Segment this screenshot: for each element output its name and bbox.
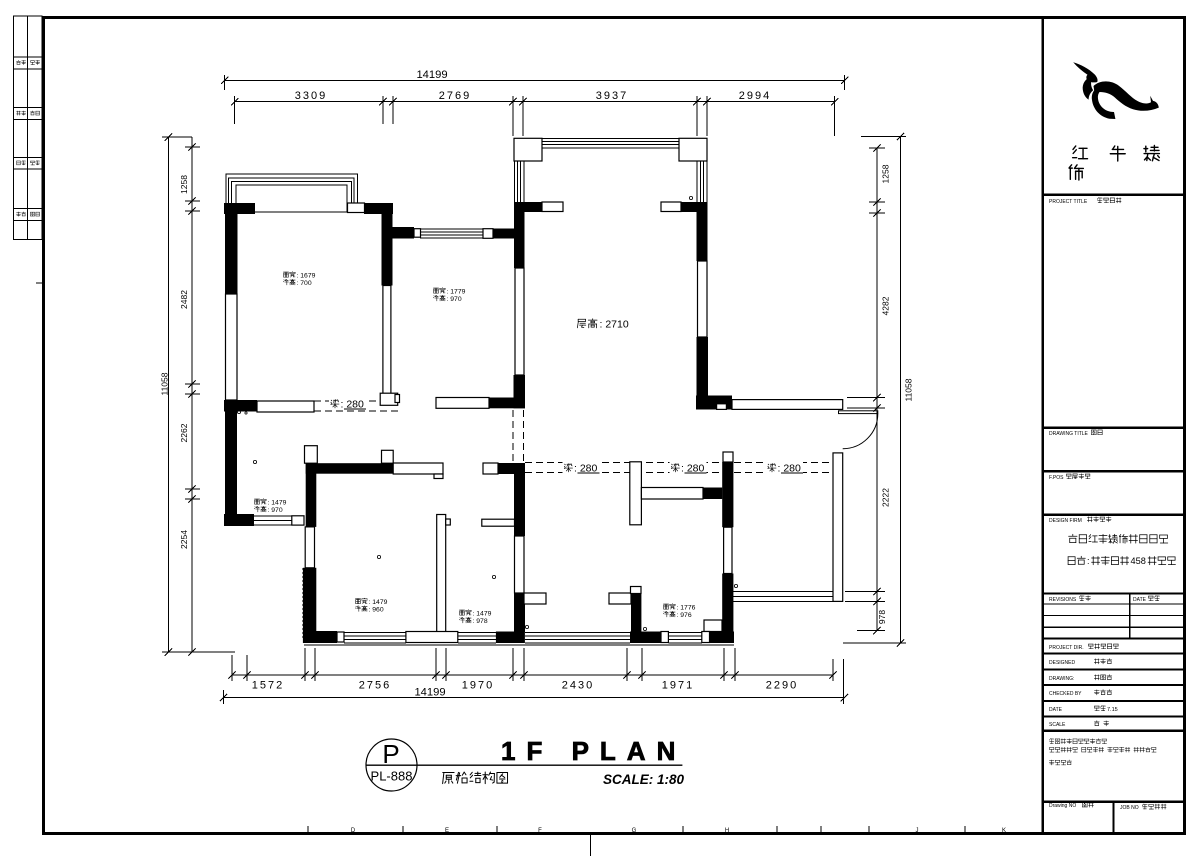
svg-text:1258: 1258 [881, 164, 891, 183]
svg-text:DATE: DATE [1049, 707, 1063, 713]
svg-text:: 970: : 970 [268, 507, 283, 514]
svg-text:D: D [351, 828, 356, 834]
svg-text:978: 978 [877, 610, 887, 624]
svg-text:1F PLAN: 1F PLAN [501, 736, 686, 766]
svg-text:DRAWING:: DRAWING: [1049, 676, 1074, 682]
svg-text:3309: 3309 [295, 90, 327, 102]
svg-text:PL-888: PL-888 [371, 769, 413, 784]
svg-text:SCALE: 1:80: SCALE: 1:80 [603, 772, 685, 787]
svg-text:: 1479: : 1479 [369, 599, 388, 606]
svg-text:1258: 1258 [179, 175, 189, 194]
svg-text:PROJECT DIR.: PROJECT DIR. [1049, 645, 1084, 651]
svg-text:: 1479: : 1479 [473, 610, 492, 617]
svg-text:7.15: 7.15 [1107, 707, 1118, 713]
svg-text:H: H [725, 828, 729, 834]
svg-text:: 1479: : 1479 [268, 499, 287, 506]
svg-text:E: E [445, 828, 449, 834]
svg-text:SCALE: SCALE [1049, 722, 1066, 728]
svg-text:3937: 3937 [596, 90, 628, 102]
svg-text:K: K [1002, 828, 1006, 834]
svg-text:CHECKED BY: CHECKED BY [1049, 691, 1082, 697]
svg-text:14199: 14199 [416, 69, 447, 81]
svg-text:: 1679: : 1679 [297, 272, 316, 279]
svg-text:1572: 1572 [252, 680, 284, 692]
svg-text:JOB NO: JOB NO [1120, 805, 1139, 811]
svg-text:2769: 2769 [439, 90, 471, 102]
svg-text:DESIGN FIRM: DESIGN FIRM [1049, 518, 1082, 524]
svg-text:2290: 2290 [766, 680, 798, 692]
svg-text:: 978: : 978 [473, 618, 488, 625]
svg-text:: 700: : 700 [297, 280, 312, 287]
svg-text:: 2710: : 2710 [600, 318, 629, 330]
svg-text:: 1779: : 1779 [447, 288, 466, 295]
svg-text:14199: 14199 [414, 687, 445, 699]
svg-text:2756: 2756 [359, 680, 391, 692]
svg-text:DATE: DATE [1133, 597, 1147, 603]
svg-text:2482: 2482 [179, 290, 189, 309]
svg-text:2262: 2262 [179, 423, 189, 442]
svg-text:2430: 2430 [562, 680, 594, 692]
svg-text:: 1776: : 1776 [677, 604, 696, 611]
svg-text:4282: 4282 [881, 296, 891, 315]
svg-text:J: J [916, 828, 919, 834]
svg-text:DESIGNED: DESIGNED [1049, 660, 1076, 666]
svg-text:11058: 11058 [904, 378, 914, 401]
svg-text:DRAWING TITLE: DRAWING TITLE [1049, 431, 1089, 437]
svg-text:PROJECT TITLE: PROJECT TITLE [1049, 199, 1088, 205]
svg-text:: 970: : 970 [447, 296, 462, 303]
svg-text:1971: 1971 [662, 680, 694, 692]
svg-text:2994: 2994 [739, 90, 771, 102]
svg-text:458: 458 [1131, 556, 1146, 566]
svg-text:1970: 1970 [462, 680, 494, 692]
svg-text::: : [1087, 556, 1090, 566]
svg-text:2254: 2254 [179, 530, 189, 549]
svg-text:11058: 11058 [160, 372, 170, 395]
svg-text:Drawing NO: Drawing NO [1049, 803, 1076, 809]
svg-text:F.POS: F.POS [1049, 475, 1064, 481]
svg-text:REVISIONS: REVISIONS [1049, 597, 1077, 603]
svg-text:F: F [538, 828, 542, 834]
svg-text:: 976: : 976 [677, 612, 692, 619]
svg-text:2222: 2222 [881, 488, 891, 507]
svg-text:G: G [632, 828, 637, 834]
svg-text:: 960: : 960 [369, 606, 384, 613]
svg-text:P: P [382, 739, 399, 769]
